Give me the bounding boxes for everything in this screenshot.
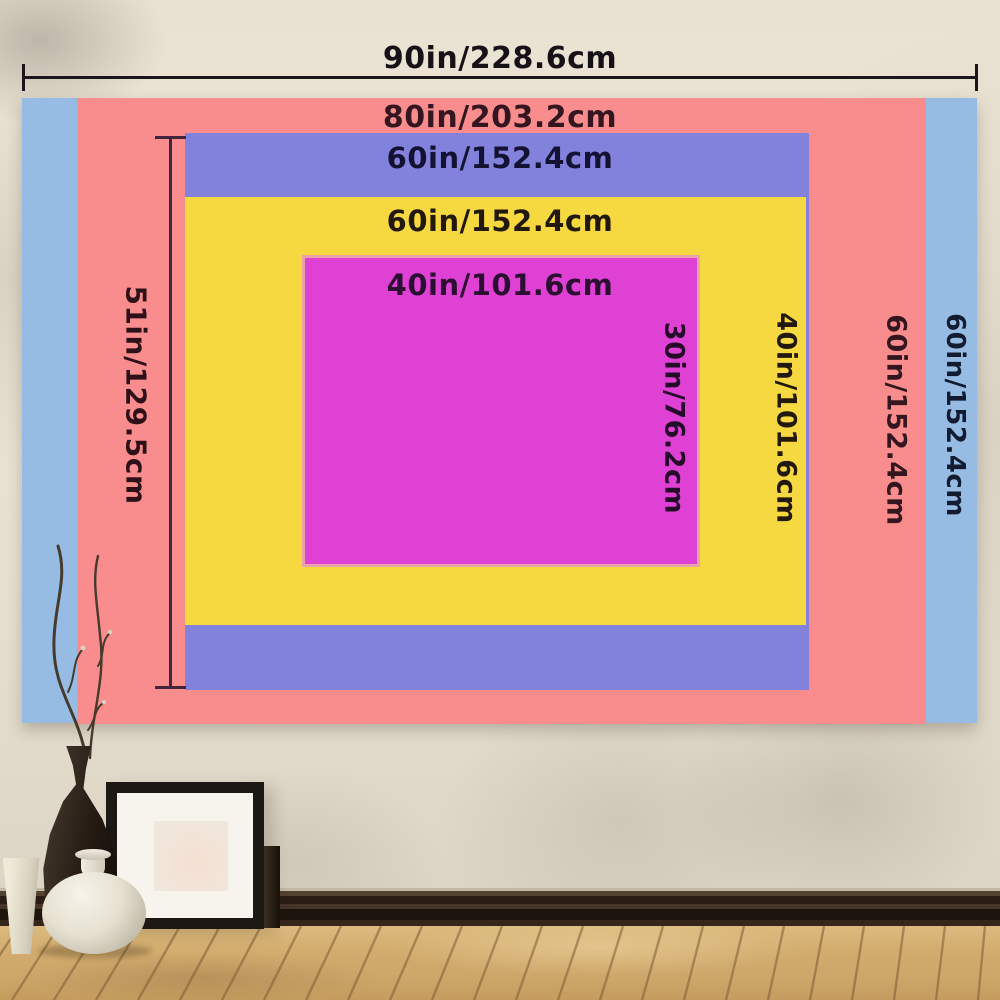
width-label-pink: 80in/203.2cm (0, 100, 1000, 135)
width-label-yellow: 60in/152.4cm (0, 204, 1000, 238)
floor-plank-lines (0, 926, 1000, 1000)
width-label-purple: 60in/152.4cm (0, 141, 1000, 175)
height-label-magenta: 30in/76.2cm (659, 322, 690, 514)
width-measure-line (22, 76, 978, 79)
height-label-purple: 51in/129.5cm (120, 285, 153, 504)
height-label-blue: 60in/152.4cm (940, 313, 970, 517)
height-label-yellow: 40in/101.6cm (771, 312, 802, 523)
wood-floor (0, 926, 1000, 1000)
height-label-pink: 60in/152.4cm (881, 314, 912, 525)
twig-branches (28, 540, 128, 770)
white-round-vase (42, 872, 146, 954)
measure-cap-bottom (155, 686, 186, 689)
width-label-blue: 90in/228.6cm (0, 41, 1000, 76)
second-frame-edge (264, 846, 280, 928)
measure-cap-top (155, 136, 186, 139)
room-scene: 90in/228.6cm 80in/203.2cm 60in/152.4cm 6… (0, 0, 1000, 1000)
white-vase-lip (75, 849, 111, 860)
frame-artwork (154, 821, 228, 891)
